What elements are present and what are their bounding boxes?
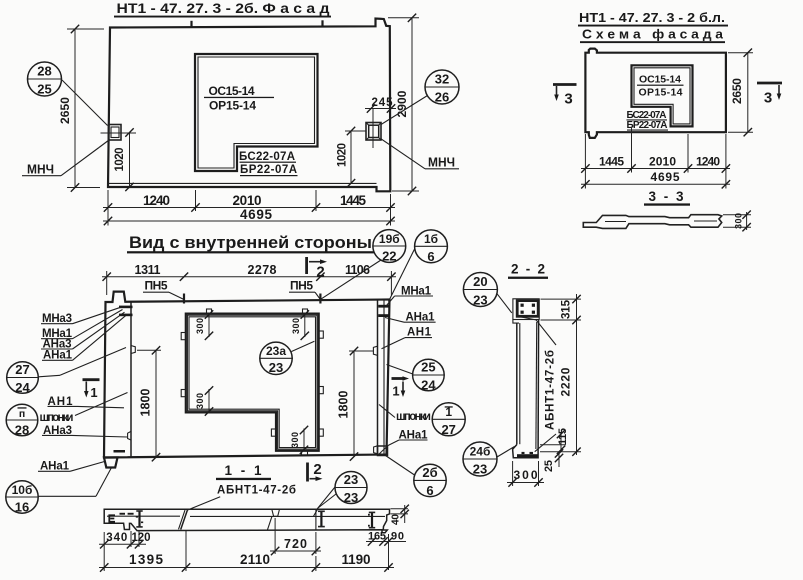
- svg-text:БР22-07А: БР22-07А: [240, 164, 297, 176]
- svg-text:п: п: [19, 408, 25, 420]
- svg-text:1800: 1800: [139, 388, 153, 416]
- svg-text:АБНТ1-47-2б: АБНТ1-47-2б: [217, 485, 296, 497]
- svg-text:2220: 2220: [559, 367, 573, 396]
- svg-text:2010: 2010: [233, 193, 262, 208]
- svg-text:НТ1 - 47. 27. 3 - 2б. Ф а с а: НТ1 - 47. 27. 3 - 2б. Ф а с а д: [117, 0, 330, 16]
- svg-text:245: 245: [372, 97, 394, 109]
- svg-text:300: 300: [291, 318, 301, 334]
- svg-text:1311: 1311: [135, 263, 161, 277]
- svg-text:23: 23: [344, 490, 358, 505]
- svg-text:23: 23: [269, 360, 283, 375]
- svg-text:1240: 1240: [696, 154, 720, 168]
- svg-text:БР22-07А: БР22-07А: [627, 120, 668, 131]
- svg-text:115: 115: [557, 428, 569, 445]
- svg-text:28: 28: [15, 423, 29, 438]
- svg-text:23а: 23а: [266, 344, 286, 358]
- svg-text:22: 22: [382, 249, 396, 264]
- svg-text:28: 28: [37, 64, 51, 79]
- svg-text:19б: 19б: [379, 232, 400, 246]
- svg-text:10б: 10б: [12, 483, 33, 497]
- svg-text:24: 24: [15, 380, 30, 395]
- svg-text:МНЧ: МНЧ: [27, 163, 54, 177]
- svg-text:ПН5: ПН5: [145, 279, 168, 293]
- svg-text:2650: 2650: [58, 97, 72, 124]
- svg-text:ОР15-14: ОР15-14: [639, 87, 683, 99]
- svg-text:2: 2: [316, 264, 324, 281]
- svg-text:26: 26: [435, 90, 449, 105]
- svg-text:25: 25: [543, 460, 555, 472]
- svg-text:4695: 4695: [651, 170, 680, 184]
- svg-text:20: 20: [473, 274, 487, 289]
- svg-text:1395: 1395: [129, 552, 163, 567]
- svg-text:шпонки: шпонки: [40, 412, 74, 424]
- svg-text:6: 6: [427, 249, 434, 264]
- svg-text:2650: 2650: [730, 78, 744, 104]
- svg-text:40: 40: [391, 514, 402, 525]
- svg-text:120: 120: [132, 532, 151, 544]
- svg-text:ОС15-14: ОС15-14: [209, 84, 255, 98]
- svg-text:БС22-07А: БС22-07А: [239, 151, 295, 163]
- svg-text:315: 315: [561, 299, 573, 319]
- svg-text:2900: 2900: [395, 90, 409, 117]
- svg-text:3: 3: [564, 91, 572, 108]
- svg-text:23: 23: [473, 462, 487, 477]
- svg-text:АНа1: АНа1: [406, 311, 436, 323]
- svg-text:МНЧ: МНЧ: [428, 156, 455, 170]
- svg-text:23: 23: [473, 293, 487, 308]
- svg-text:165: 165: [368, 531, 386, 543]
- svg-text:2б: 2б: [422, 465, 437, 480]
- svg-text:2110: 2110: [240, 552, 270, 567]
- svg-text:Вид с внутренней стороны: Вид с внутренней стороны: [129, 234, 372, 252]
- svg-text:300: 300: [195, 393, 205, 409]
- svg-text:ОС15-14: ОС15-14: [639, 74, 681, 86]
- svg-text:1: 1: [90, 385, 97, 400]
- svg-text:340: 340: [106, 532, 127, 544]
- svg-text:25: 25: [37, 82, 51, 97]
- svg-text:32: 32: [435, 72, 449, 87]
- svg-text:3 - 3: 3 - 3: [649, 189, 684, 204]
- svg-text:720: 720: [284, 537, 307, 551]
- svg-text:90: 90: [391, 531, 404, 543]
- svg-text:27: 27: [15, 362, 29, 377]
- svg-text:ПН5: ПН5: [290, 279, 313, 293]
- svg-text:4695: 4695: [240, 207, 272, 222]
- svg-text:2: 2: [313, 461, 321, 478]
- svg-text:1: 1: [392, 384, 399, 399]
- svg-text:27: 27: [441, 422, 455, 437]
- svg-text:2 - 2: 2 - 2: [511, 262, 545, 277]
- svg-text:2278: 2278: [248, 263, 277, 277]
- svg-text:25: 25: [421, 360, 435, 375]
- svg-text:300: 300: [195, 318, 205, 334]
- svg-text:1240: 1240: [143, 193, 170, 208]
- svg-text:1 - 1: 1 - 1: [225, 463, 262, 478]
- svg-text:1190: 1190: [342, 552, 371, 567]
- svg-text:300: 300: [734, 213, 744, 229]
- svg-text:2010: 2010: [649, 154, 676, 168]
- svg-text:АН1: АН1: [407, 327, 432, 339]
- svg-text:300: 300: [514, 468, 538, 482]
- svg-text:3: 3: [764, 90, 772, 107]
- svg-text:24: 24: [421, 378, 436, 393]
- svg-text:1800: 1800: [337, 390, 351, 418]
- svg-text:23: 23: [344, 472, 358, 487]
- svg-text:С х е м а ф а с а д а: С х е м а ф а с а д а: [582, 28, 724, 42]
- svg-text:24б: 24б: [470, 445, 491, 459]
- svg-text:1445: 1445: [340, 193, 366, 208]
- svg-text:6: 6: [426, 483, 433, 498]
- svg-text:1020: 1020: [114, 148, 126, 172]
- svg-text:1б: 1б: [424, 232, 438, 246]
- svg-text:16: 16: [15, 500, 29, 515]
- svg-text:ОР15-14: ОР15-14: [209, 99, 256, 113]
- svg-text:шпонки: шпонки: [396, 411, 431, 423]
- svg-text:1020: 1020: [337, 143, 349, 167]
- svg-text:НТ1 - 47. 27. 3 - 2 б.л.: НТ1 - 47. 27. 3 - 2 б.л.: [579, 10, 725, 25]
- svg-text:1445: 1445: [599, 154, 624, 168]
- svg-text:АБНТ1-47-2б: АБНТ1-47-2б: [545, 350, 557, 430]
- svg-text:300: 300: [290, 432, 300, 448]
